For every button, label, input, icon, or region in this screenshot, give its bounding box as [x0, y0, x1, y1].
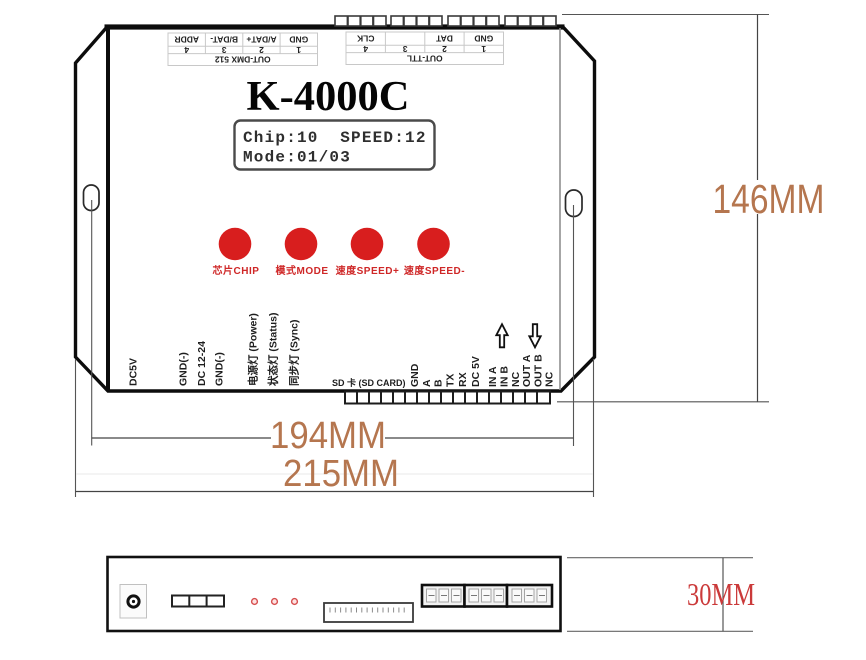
- svg-text:4: 4: [363, 44, 368, 54]
- svg-text:IN B: IN B: [499, 366, 511, 387]
- svg-text:IN A: IN A: [487, 366, 499, 387]
- svg-text:RX: RX: [457, 372, 469, 387]
- svg-text:2: 2: [259, 45, 264, 55]
- svg-text:OUT-DMX 512: OUT-DMX 512: [215, 54, 271, 64]
- svg-text:215MM: 215MM: [283, 453, 399, 495]
- svg-text:GND(-): GND(-): [214, 352, 226, 386]
- svg-text:CLK: CLK: [356, 34, 374, 44]
- svg-text:GND: GND: [409, 363, 421, 387]
- svg-text:1: 1: [481, 44, 486, 54]
- svg-text:ADDR: ADDR: [174, 35, 199, 45]
- svg-text:1: 1: [296, 45, 301, 55]
- svg-text:DC 12-24: DC 12-24: [196, 341, 208, 386]
- svg-text:A: A: [421, 379, 433, 387]
- svg-text:DC 5V: DC 5V: [470, 356, 482, 387]
- svg-text:模式MODE: 模式MODE: [276, 264, 329, 277]
- svg-text:DAT: DAT: [435, 34, 453, 44]
- svg-text:OUT-TTL: OUT-TTL: [407, 53, 443, 63]
- svg-text:2: 2: [442, 44, 447, 54]
- svg-text:4: 4: [184, 45, 189, 55]
- svg-text:146MM: 146MM: [713, 176, 825, 222]
- svg-text:Mode:01/03: Mode:01/03: [243, 149, 351, 167]
- svg-text:3: 3: [221, 45, 226, 55]
- svg-text:OUT A: OUT A: [521, 354, 533, 387]
- svg-text:NC: NC: [544, 371, 556, 387]
- svg-text:B: B: [433, 379, 445, 387]
- svg-text:芯片CHIP: 芯片CHIP: [213, 264, 260, 277]
- svg-text:GND(-): GND(-): [178, 352, 190, 386]
- svg-text:速度SPEED+: 速度SPEED+: [336, 264, 400, 277]
- svg-text:电源灯 (Power): 电源灯 (Power): [247, 313, 260, 386]
- svg-text:GND: GND: [289, 35, 308, 45]
- svg-text:3: 3: [402, 44, 407, 54]
- svg-text:A/DAT+: A/DAT+: [246, 35, 276, 45]
- svg-text:SD 卡 (SD CARD): SD 卡 (SD CARD): [332, 377, 406, 388]
- svg-text:同步灯 (Sync): 同步灯 (Sync): [288, 319, 301, 386]
- svg-text:Chip:10 SPEED:12: Chip:10 SPEED:12: [243, 129, 427, 147]
- svg-text:TX: TX: [445, 374, 457, 387]
- svg-text:速度SPEED-: 速度SPEED-: [404, 264, 465, 277]
- svg-text:DC5V: DC5V: [128, 358, 140, 386]
- svg-text:状态灯 (Status): 状态灯 (Status): [267, 313, 280, 387]
- svg-text:194MM: 194MM: [270, 415, 386, 457]
- svg-text:GND: GND: [474, 34, 493, 44]
- svg-text:B/DAT-: B/DAT-: [210, 35, 238, 45]
- svg-text:K-4000C: K-4000C: [247, 74, 410, 120]
- svg-text:30MM: 30MM: [687, 576, 755, 612]
